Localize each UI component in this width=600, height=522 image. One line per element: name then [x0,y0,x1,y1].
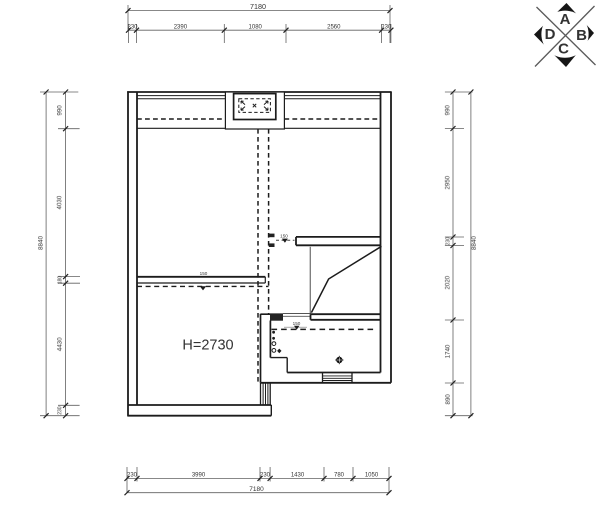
svg-text:H=2730: H=2730 [182,338,233,354]
svg-text:780: 780 [334,473,345,479]
svg-text:230: 230 [127,24,138,30]
svg-text:2390: 2390 [174,24,188,30]
svg-text:B: B [576,27,587,44]
svg-text:4430: 4430 [56,337,63,351]
svg-text:1740: 1740 [445,344,452,358]
svg-text:2020: 2020 [445,275,452,289]
svg-text:1080: 1080 [249,24,263,30]
svg-text:D: D [545,26,556,43]
svg-text:8840: 8840 [38,236,45,251]
svg-text:150: 150 [200,271,208,276]
svg-text:2950: 2950 [445,175,452,189]
svg-text:1430: 1430 [291,473,305,479]
svg-text:230: 230 [260,473,271,479]
svg-text:230: 230 [57,406,63,415]
svg-text:150: 150 [293,321,301,326]
svg-text:A: A [560,11,571,28]
svg-text:C: C [558,41,569,58]
svg-text:180: 180 [57,276,63,285]
svg-text:8840: 8840 [471,236,478,251]
svg-text:1050: 1050 [365,473,379,479]
svg-text:150: 150 [280,233,288,238]
svg-text:7180: 7180 [250,2,266,11]
svg-text:990: 990 [445,104,452,115]
svg-text:230: 230 [127,473,138,479]
svg-text:230: 230 [446,237,452,246]
svg-text:2560: 2560 [327,24,341,30]
svg-text:890: 890 [445,394,452,405]
svg-text:990: 990 [56,105,63,116]
svg-text:230: 230 [381,24,392,30]
svg-text:3990: 3990 [192,473,206,479]
svg-text:7180: 7180 [249,486,264,493]
svg-text:4030: 4030 [56,195,63,209]
